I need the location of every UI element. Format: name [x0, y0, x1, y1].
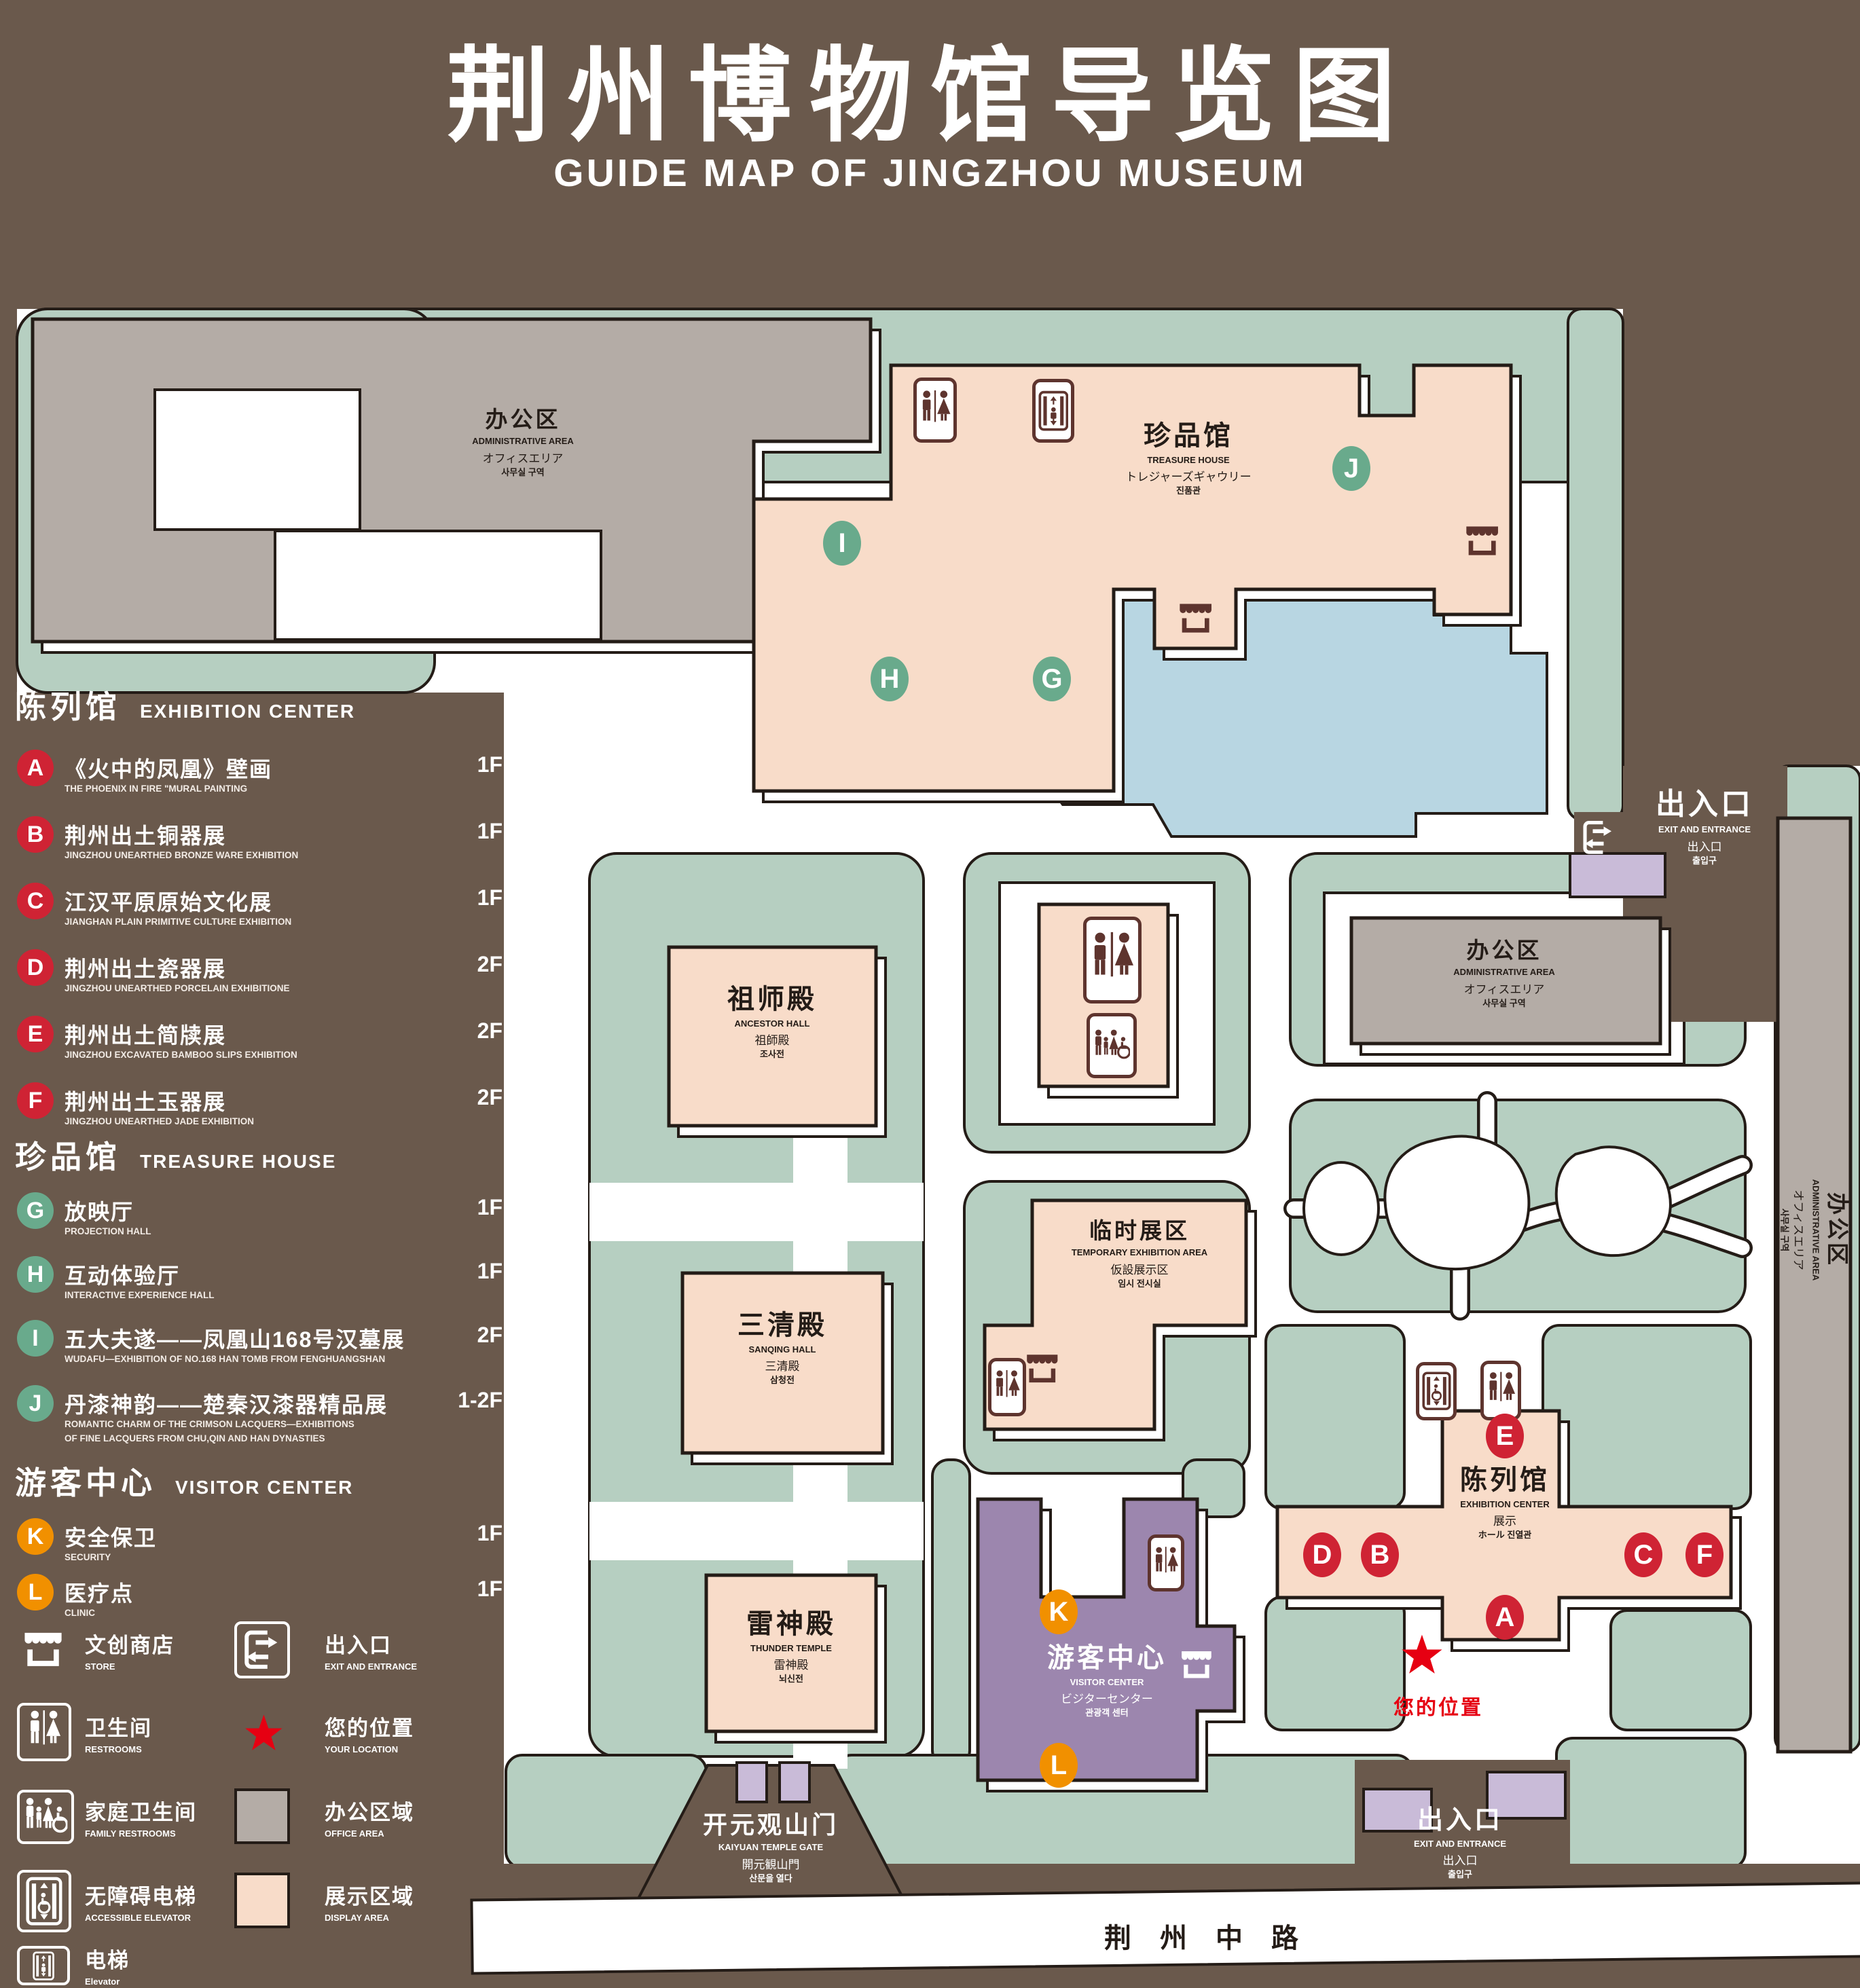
restrooms-icon — [17, 1703, 71, 1761]
legend-symbol-exit: 出入口EXIT AND ENTRANCE — [325, 1628, 417, 1672]
display-area-swatch — [234, 1873, 290, 1928]
treasure-house-label: 珍品馆 TREASURE HOUSE トレジャーズギャウリー 진품관 — [1125, 421, 1251, 496]
family-restrooms-icon — [17, 1790, 74, 1844]
exit-right-structure — [1570, 853, 1665, 897]
legend-symbol-accessible-elevator: 无障碍电梯ACCESSIBLE ELEVATOR — [85, 1879, 197, 1923]
marker-l: L — [1040, 1743, 1078, 1788]
restrooms-icon — [1083, 917, 1142, 1004]
restrooms-icon — [913, 378, 957, 443]
marker-c: C — [1624, 1532, 1662, 1577]
exit-icon — [234, 1621, 290, 1678]
restrooms-icon — [1480, 1361, 1521, 1420]
gate-pillar-right — [780, 1763, 809, 1802]
legend-item-b: B 荆州出土铜器展 JINGZHOU UNEARTHED BRONZE WARE… — [17, 819, 503, 881]
exhibition-center-label: 陈列馆 EXHIBITION CENTER 展示 ホール 진열관 — [1460, 1465, 1550, 1541]
your-location-star — [1398, 1630, 1446, 1678]
legend-item-d: D 荆州出土瓷器展 JINGZHOU UNEARTHED PORCELAIN E… — [17, 952, 503, 1014]
gate-pillar-left — [737, 1763, 767, 1802]
marker-f: F — [1685, 1532, 1724, 1577]
legend-item-c: C 江汉平原原始文化展 JIANGHAN PLAIN PRIMITIVE CUL… — [17, 885, 503, 948]
legend-item-a: A 《火中的凤凰》壁画 THE PHOENIX IN FIRE "MURAL P… — [17, 752, 503, 815]
exit-bottom-label: 出入口 EXIT AND ENTRANCE 出入口 출입구 — [1414, 1806, 1506, 1880]
legend-section-visitor-center: 游客中心VISITOR CENTER — [15, 1458, 353, 1503]
marker-e: E — [1486, 1414, 1524, 1458]
marker-a: A — [1486, 1595, 1524, 1640]
admin-mid-label: 办公区 ADMINISTRATIVE AREA オフィスエリア 사무실 구역 — [1453, 938, 1555, 1008]
guide-map-page: 荆州博物馆导览图 GUIDE MAP OF JINGZHOU MUSEUM — [0, 0, 1860, 1988]
legend-symbol-elevator: 电梯Elevator — [85, 1943, 130, 1987]
exit-right-label: 出入口 EXIT AND ENTRANCE 出入口 출입구 — [1656, 788, 1753, 866]
marker-j: J — [1332, 446, 1370, 491]
admin-right-label: 办公区 ADMINISTRATIVE AREA オフィスエリア 사무실 구역 — [1779, 1179, 1849, 1281]
legend-item-e: E 荆州出土简牍展 JINGZHOU EXCAVATED BAMBOO SLIP… — [17, 1018, 503, 1081]
legend-symbol-your-location: 您的位置YOUR LOCATION — [325, 1711, 414, 1754]
legend-item-h: H 互动体验厅 INTERACTIVE EXPERIENCE HALL 1F — [17, 1259, 503, 1321]
admin-right-building — [1778, 818, 1850, 1752]
store-icon — [1175, 592, 1217, 645]
office-area-swatch — [234, 1788, 290, 1844]
marker-i: I — [823, 521, 861, 566]
temporary-exhibition-label: 临时展区 TEMPORARY EXHIBITION AREA 仮設展示区 임시 … — [1072, 1219, 1207, 1289]
marker-g: G — [1033, 657, 1071, 701]
legend-section-treasure-house: 珍品馆TREASURE HOUSE — [15, 1133, 336, 1177]
store-icon — [1022, 1343, 1063, 1395]
store-icon — [1461, 515, 1503, 568]
thunder-temple-label: 雷神殿 THUNDER TEMPLE 雷神殿 뇌신전 — [746, 1609, 836, 1685]
legend-symbol-office-area: 办公区域OFFICE AREA — [325, 1795, 414, 1839]
sanqing-hall-label: 三清殿 SANQING HALL 三清殿 삼청전 — [737, 1310, 827, 1386]
gate-label: 开元观山门 KAIYUAN TEMPLE GATE 開元観山門 산문을 열다 — [703, 1811, 839, 1883]
marker-h: H — [871, 657, 909, 701]
legend-symbol-display-area: 展示区域DISPLAY AREA — [325, 1879, 414, 1923]
legend-section-exhibition-center: 陈列馆EXHIBITION CENTER — [15, 682, 355, 727]
legend-symbol-family-restrooms: 家庭卫生间FAMILY RESTROOMS — [85, 1795, 197, 1839]
legend-item-k: K 安全保卫 SECURITY 1F — [17, 1521, 503, 1583]
family-restrooms-icon — [1087, 1013, 1137, 1078]
marker-k: K — [1040, 1589, 1078, 1634]
store-icon — [1177, 1640, 1216, 1690]
visitor-center-label: 游客中心 VISITOR CENTER ビジターセンター 관광객 센터 — [1047, 1643, 1167, 1718]
admin-top-label: 办公区 ADMINISTRATIVE AREA オフィスエリア 사무실 구역 — [472, 407, 574, 477]
your-location-label: 您的位置 — [1393, 1691, 1483, 1720]
store-icon — [17, 1627, 70, 1672]
elevator-icon — [17, 1946, 70, 1985]
ancestor-hall-label: 祖师殿 ANCESTOR HALL 祖師殿 조사전 — [727, 984, 817, 1060]
legend-item-g: G 放映厅 PROJECTION HALL 1F — [17, 1195, 503, 1257]
road-label: 荆州中路 — [1104, 1916, 1327, 1955]
restrooms-icon — [1148, 1534, 1184, 1591]
marker-b: B — [1361, 1532, 1399, 1577]
legend-symbol-restrooms: 卫生间RESTROOMS — [85, 1711, 152, 1754]
accessible-elevator-icon — [17, 1870, 71, 1932]
accessible-elevator-icon — [1416, 1362, 1457, 1420]
legend-symbol-store: 文创商店STORE — [85, 1628, 175, 1672]
your-location-star — [241, 1710, 286, 1754]
restrooms-icon — [988, 1358, 1026, 1416]
legend-item-i: I 五大夫遂——凤凰山168号汉墓展 WUDAFU—EXHIBITION OF … — [17, 1323, 503, 1385]
exit-icon — [1577, 815, 1620, 860]
elevator-icon — [1032, 379, 1074, 443]
marker-d: D — [1303, 1532, 1341, 1577]
legend-item-j: J 丹漆神韵——楚秦汉漆器精品展 ROMANTIC CHARM OF THE C… — [17, 1388, 503, 1450]
